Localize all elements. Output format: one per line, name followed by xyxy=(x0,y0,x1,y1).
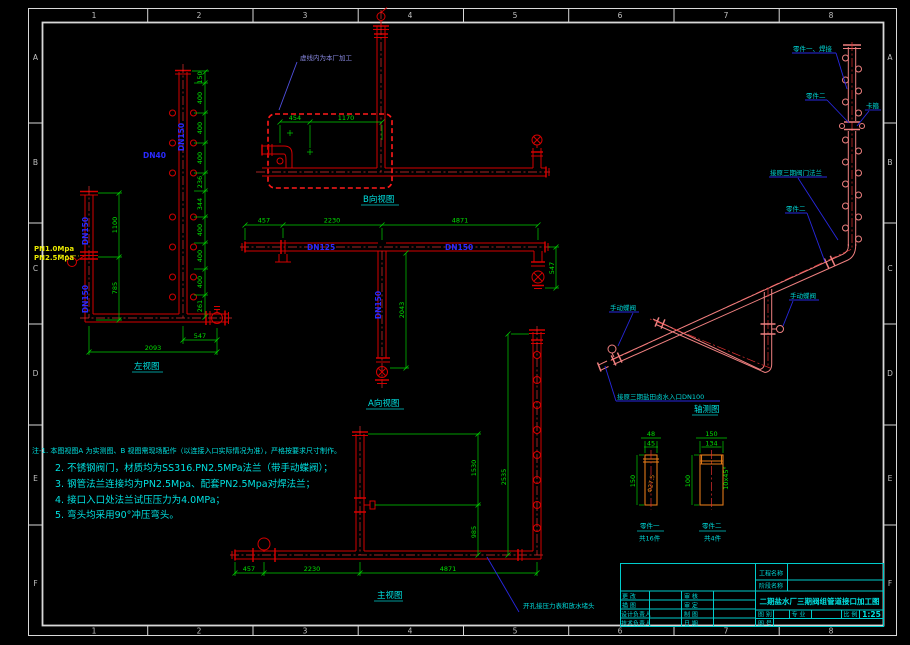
zone-number: 7 xyxy=(724,11,729,20)
dim-1170: 1170 xyxy=(338,114,355,122)
note-line-4: 4. 接口入口处法兰试压压力为4.0MPa； xyxy=(55,494,225,506)
scale-label: 比 例 xyxy=(844,611,858,619)
leader-part2: 零件二 xyxy=(806,91,826,100)
dim-785: 785 xyxy=(111,282,119,294)
view-title: 轴测图 xyxy=(694,404,720,415)
zone-letter: D xyxy=(33,369,39,378)
dim-1530: 1530 xyxy=(470,460,478,477)
zone-letter: C xyxy=(887,264,892,273)
sig-row-label: 设计负责人 xyxy=(621,611,651,619)
leader-part2b: 零件二 xyxy=(786,204,806,213)
part-name: 零件一 xyxy=(640,521,660,530)
zone-number: 6 xyxy=(618,11,623,20)
dn-label: DN125 xyxy=(307,243,335,252)
zone-letter: F xyxy=(33,579,37,588)
drawing-number-label: 图 号 xyxy=(758,621,772,628)
note-line-3: 3. 钢管法兰连接均为PN2.5Mpa、配套PN2.5Mpa对焊法兰； xyxy=(55,478,315,490)
zone-number: 1 xyxy=(92,11,97,20)
dim-2535: 2535 xyxy=(500,469,508,486)
leader-part1: 零件一、焊接 xyxy=(793,44,833,53)
zone-letter: F xyxy=(888,579,892,588)
dim-134: 134 xyxy=(705,440,717,448)
dn-label: DN150 xyxy=(81,285,90,313)
dim-48: 48 xyxy=(647,430,655,438)
zone-number: 3 xyxy=(303,627,308,636)
note-line-1: 注-1. 本图视图A 为实测图、B 视图需现场配作（以连接入口实际情况为准），严… xyxy=(32,446,341,455)
dim-400: 400 xyxy=(196,122,204,134)
part-name: 零件二 xyxy=(702,521,722,530)
dn-label: DN150 xyxy=(374,291,383,319)
dim-150: 150 xyxy=(705,430,717,438)
pn-rating-label: PN1.0Mpa xyxy=(34,245,74,253)
zone-letter: C xyxy=(33,264,38,273)
sig-row-label: 审 核 xyxy=(684,593,698,601)
dim-344: 344 xyxy=(196,198,204,210)
dn-label: DN150 xyxy=(81,217,90,245)
zone-number: 2 xyxy=(197,11,202,20)
note-line-5: 5. 弯头均采用90°冲压弯头。 xyxy=(55,509,179,521)
dim-400: 400 xyxy=(196,276,204,288)
dim-400: 400 xyxy=(196,224,204,236)
dim-4871: 4871 xyxy=(452,217,469,225)
dim-4871: 4871 xyxy=(440,565,457,573)
dim-454: 454 xyxy=(289,114,301,122)
scale-value: 1:25 xyxy=(862,610,881,619)
leader-inlet-dn100: 接原三期盐田卤水入口DN100 xyxy=(617,392,704,401)
zone-number: 8 xyxy=(829,627,834,636)
sig-row-label: 制 图 xyxy=(684,611,698,619)
view-title: B向视图 xyxy=(363,194,394,205)
view-title: A向视图 xyxy=(368,398,399,409)
zone-number: 6 xyxy=(618,627,623,636)
cad-drawing-canvas: 1 2 3 4 5 6 7 8 1 2 3 4 5 6 7 8 A B C D … xyxy=(0,0,910,645)
sig-row-label: 技术负责人 xyxy=(621,620,651,628)
sig-row-label: 描 图 xyxy=(622,602,636,610)
zone-letter: E xyxy=(888,474,893,483)
zone-number: 5 xyxy=(513,11,518,20)
leader-manual-valve: 手动蝶阀 xyxy=(610,303,636,312)
zone-letter: E xyxy=(33,474,38,483)
view-title: 左视图 xyxy=(134,361,160,372)
drawing-type-label: 图 别 xyxy=(758,611,772,619)
dim-100: 100 xyxy=(684,475,692,487)
view-title: 主视图 xyxy=(377,590,403,601)
drawing-title: 二期盐水厂三期阀组管道接口加工图 xyxy=(760,596,880,606)
dim-400: 400 xyxy=(196,92,204,104)
leader-clamp: 卡箍 xyxy=(866,101,880,110)
pn-rating-label: PN2.5Mpa xyxy=(34,254,74,262)
dim-547: 547 xyxy=(548,262,556,274)
dim-547: 547 xyxy=(194,332,206,340)
dim-2230: 2230 xyxy=(324,217,341,225)
part-qty: 共4件 xyxy=(704,534,722,543)
zone-letter: A xyxy=(887,53,893,62)
dim-2093: 2093 xyxy=(145,344,162,352)
project-name-label: 工程名称 xyxy=(759,570,783,578)
dim-457: 457 xyxy=(258,217,270,225)
sig-row-label: 审 定 xyxy=(684,602,698,610)
stage-name-label: 阶段名称 xyxy=(759,582,783,590)
note-line-2: 2. 不锈钢阀门，材质均为SS316.PN2.5MPa法兰（带手动蝶阀）； xyxy=(55,462,333,474)
dn-label: DN150 xyxy=(177,123,186,151)
dim-150: 150 xyxy=(629,475,637,487)
zone-letter: A xyxy=(33,53,39,62)
zone-number: 8 xyxy=(829,11,834,20)
dim-985: 985 xyxy=(470,526,478,538)
zone-number: 1 xyxy=(92,627,97,636)
dim-400: 400 xyxy=(196,250,204,262)
part-qty: 共16件 xyxy=(639,534,661,543)
leader-flange: 接原三期阀门法兰 xyxy=(770,168,823,177)
zone-letter: B xyxy=(887,158,892,167)
dim-1100: 1100 xyxy=(111,217,119,234)
zone-number: 4 xyxy=(408,627,413,636)
zone-number: 7 xyxy=(724,627,729,636)
dim-261: 261 xyxy=(196,300,204,312)
dn-label: DN40 xyxy=(143,151,166,160)
zone-letter: D xyxy=(887,369,893,378)
chamfer-note: 10x45° xyxy=(722,466,730,490)
dn-label: DN150 xyxy=(445,243,473,252)
boundary-note: 虚线内为本厂加工 xyxy=(300,53,353,62)
dim-45: 45 xyxy=(647,440,655,448)
pressure-tap-note: 开孔接压力表和放水堵头 xyxy=(523,601,595,610)
sig-row-label: 日 期 xyxy=(684,620,698,628)
dim-2043: 2043 xyxy=(398,302,406,319)
cad-drawing: 1 2 3 4 5 6 7 8 1 2 3 4 5 6 7 8 A B C D … xyxy=(0,0,910,645)
zone-number: 5 xyxy=(513,627,518,636)
dim-150: 150 xyxy=(196,71,204,83)
leader-manual-valve: 手动蝶阀 xyxy=(790,291,816,300)
sig-row-label: 更 改 xyxy=(622,593,636,601)
zone-number: 2 xyxy=(197,627,202,636)
discipline-label: 专 业 xyxy=(792,611,806,619)
dim-457: 457 xyxy=(243,565,255,573)
zone-number: 3 xyxy=(303,11,308,20)
dim-400: 400 xyxy=(196,152,204,164)
dim-2230: 2230 xyxy=(304,565,321,573)
dim-236: 236 xyxy=(196,176,204,188)
zone-letter: B xyxy=(33,158,38,167)
zone-number: 4 xyxy=(408,11,413,20)
